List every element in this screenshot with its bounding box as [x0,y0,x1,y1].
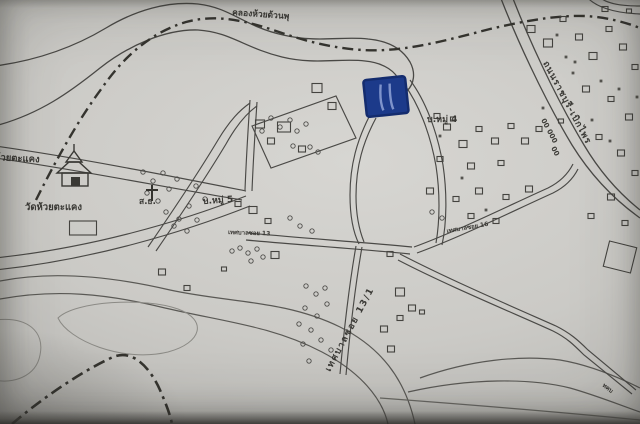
tree-icon [308,145,312,149]
tree-icon [325,302,329,306]
label-soi16: เทศบาลซอย 16 [446,221,489,235]
building-square [632,171,638,176]
building-square [618,150,625,156]
building-square [427,188,434,194]
road-soi13 [248,233,412,247]
building-square [271,252,279,259]
building-square [476,127,482,132]
small-structure-dot [556,34,559,37]
building-square [522,138,529,144]
building-square [526,186,533,192]
road-left [0,146,246,191]
building-square [453,197,459,202]
small-structure-dot [439,135,442,138]
building-square [278,122,291,132]
tree-icon [319,338,323,342]
building-square [397,316,403,321]
tree-icon [314,292,318,296]
building-square [492,138,499,144]
label-temple: วัดห้วยตะแคง [25,201,82,213]
tree-icon [430,210,434,214]
tree-icon [185,229,189,233]
building-square [536,127,542,132]
dots-layer [439,34,639,212]
building-square [503,195,509,200]
building-square [606,27,612,32]
road-highway [512,0,640,210]
building-square [70,221,97,235]
building-square [420,310,425,314]
building-square [622,221,628,226]
stream-line [0,276,415,424]
label-road-left: ห้วยตะแคง [0,151,40,165]
tree-icon [194,184,198,188]
label-road-bottom-right: ทคบ [601,382,615,395]
tree-icon [440,216,444,220]
small-structure-dot [636,96,639,99]
road-top-right-bend [599,0,640,6]
trees-layer [141,116,444,363]
label-soi13-1: เทศบาลซอย 13/1 [324,286,377,374]
road-marker-south [350,115,370,244]
roads [0,0,640,394]
building-square [265,219,271,224]
building-square [603,241,636,273]
tree-icon [309,328,313,332]
building-square [626,114,633,120]
building-square [544,39,553,47]
pond-outline [0,319,41,381]
map-svg: คลองห้วยด้วนพุ ห้วยตะแคง วัดห้วยตะแคง ส.… [0,0,640,424]
compound-outline [252,96,356,168]
building-square [468,163,475,169]
tree-icon [238,246,242,250]
building-square [184,286,190,291]
small-structure-dot [574,61,577,64]
building-square [159,269,166,275]
highlight-marker-body [363,76,409,117]
building-square [583,86,590,92]
tree-icon [291,144,295,148]
small-structure-dot [542,107,545,110]
small-structure-dot [461,177,464,180]
tree-icon [261,255,265,259]
building-square [508,124,514,129]
road-marker-south [356,118,376,242]
building-square [596,135,602,140]
canal-bank-inner [0,30,400,126]
tree-icon [156,199,160,203]
small-structure-dot [591,119,594,122]
tree-icon [288,216,292,220]
road-bottom-right [400,254,636,390]
tree-icon [304,284,308,288]
tree-icon [297,322,301,326]
tree-icon [323,286,327,290]
building-square [268,138,275,144]
small-structure-dot [485,209,488,212]
map-photo: คลองห้วยด้วนพุ ห้วยตะแคง วัดห้วยตะแคง ส.… [0,0,640,424]
tree-icon [278,125,282,129]
tree-icon [141,170,145,174]
label-school: ส.ธ. [139,197,156,207]
tree-icon [195,218,199,222]
tree-icon [187,204,191,208]
road-moo4 [410,80,446,245]
tree-icon [246,251,250,255]
building-square [328,103,336,110]
tree-icon [145,191,149,195]
tree-icon [260,129,264,133]
tree-icon [230,249,234,253]
building-square [381,326,388,332]
building-square [498,161,504,166]
label-village-moo4: บ.หมู่ 4 [427,114,457,125]
tree-icon [303,306,307,310]
small-structure-dot [565,56,568,59]
canal-bank-outer [0,3,414,91]
building-square [476,188,483,194]
label-canal-top: คลองห้วยด้วนพุ [232,7,290,22]
building-square [608,97,614,102]
building-square [576,34,583,40]
small-structure-dot [618,88,621,91]
tree-icon [164,210,168,214]
building-square [299,146,306,152]
building-square [222,267,227,271]
label-km-post-bottom: 00 [549,145,561,157]
building-square [409,305,416,311]
temple-roof [57,162,91,173]
building-square [388,346,395,352]
building-square [312,84,322,93]
tree-icon [307,359,311,363]
building-square [249,207,257,214]
tree-icon [255,247,259,251]
building-square [588,214,594,219]
tree-icon [249,259,253,263]
building-square [527,26,535,33]
boundary-dashdot-top [36,16,640,200]
small-structure-dot [572,72,575,75]
temple-roof-upper [66,151,82,162]
road-temple-north [252,102,257,191]
building-square [620,44,627,50]
building-square [235,202,241,207]
label-soi13: เทศบาลซอย 13 [228,229,271,237]
tree-icon [304,122,308,126]
stream-line [380,398,640,420]
label-village-moo5: บ.หมู่ 5 [202,194,233,207]
building-square [459,141,467,148]
small-structure-dot [600,80,603,83]
tree-icon [298,224,302,228]
highlight-marker [363,76,409,117]
building-square [468,214,474,219]
tree-icon [295,129,299,133]
building-square [589,53,597,60]
building-square [632,65,638,70]
road-southwest [0,206,250,270]
temple-door [71,177,80,186]
tree-icon [151,179,155,183]
building-square [627,9,632,13]
waterways [0,276,640,424]
labels: คลองห้วยด้วนพุ ห้วยตะแคง วัดห้วยตะแคง ส.… [0,7,615,395]
tree-icon [310,229,314,233]
small-structure-dot [609,140,612,143]
building-square [396,288,405,296]
